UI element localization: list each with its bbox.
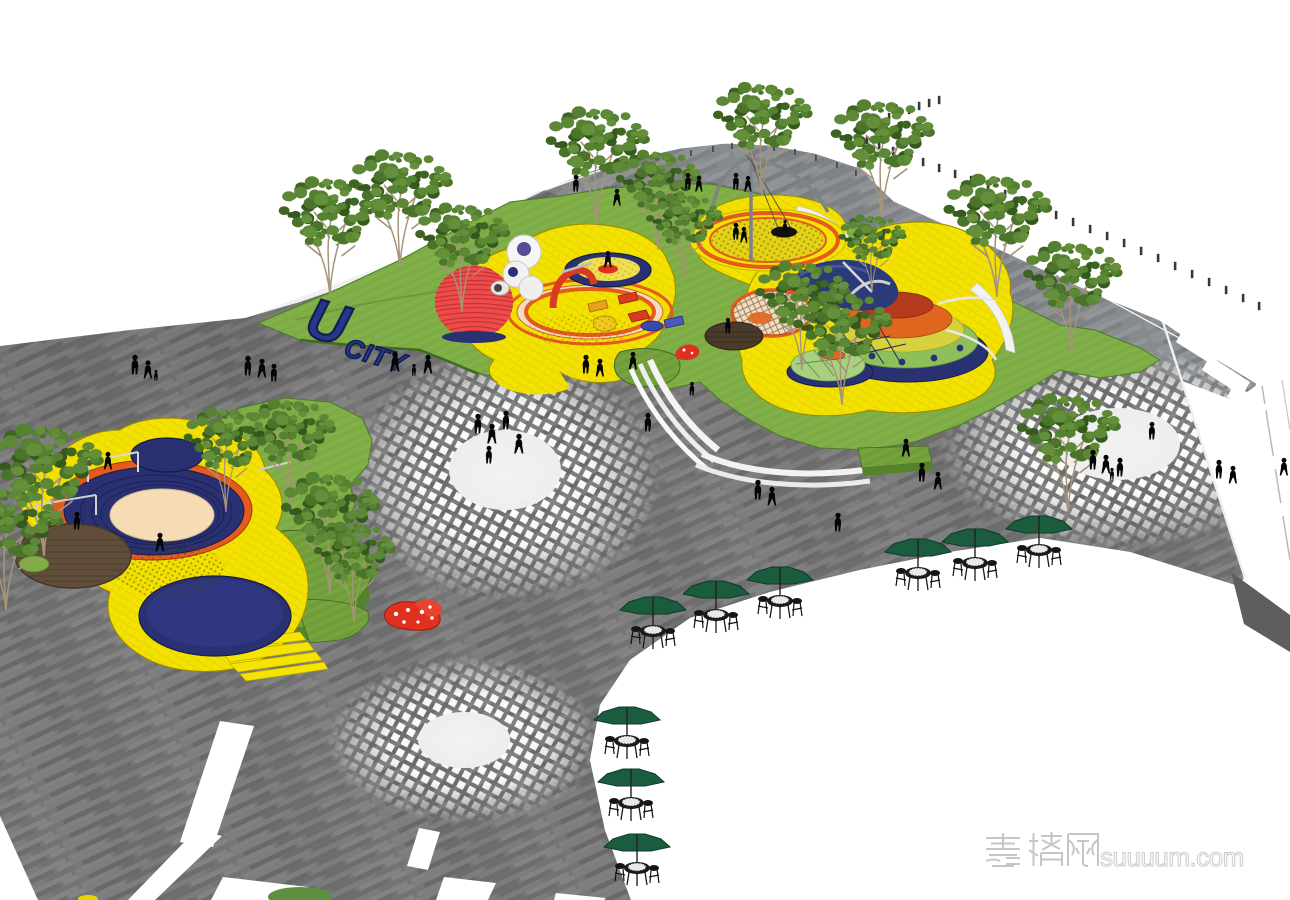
svg-text:suuuum.com: suuuum.com <box>1100 842 1244 872</box>
